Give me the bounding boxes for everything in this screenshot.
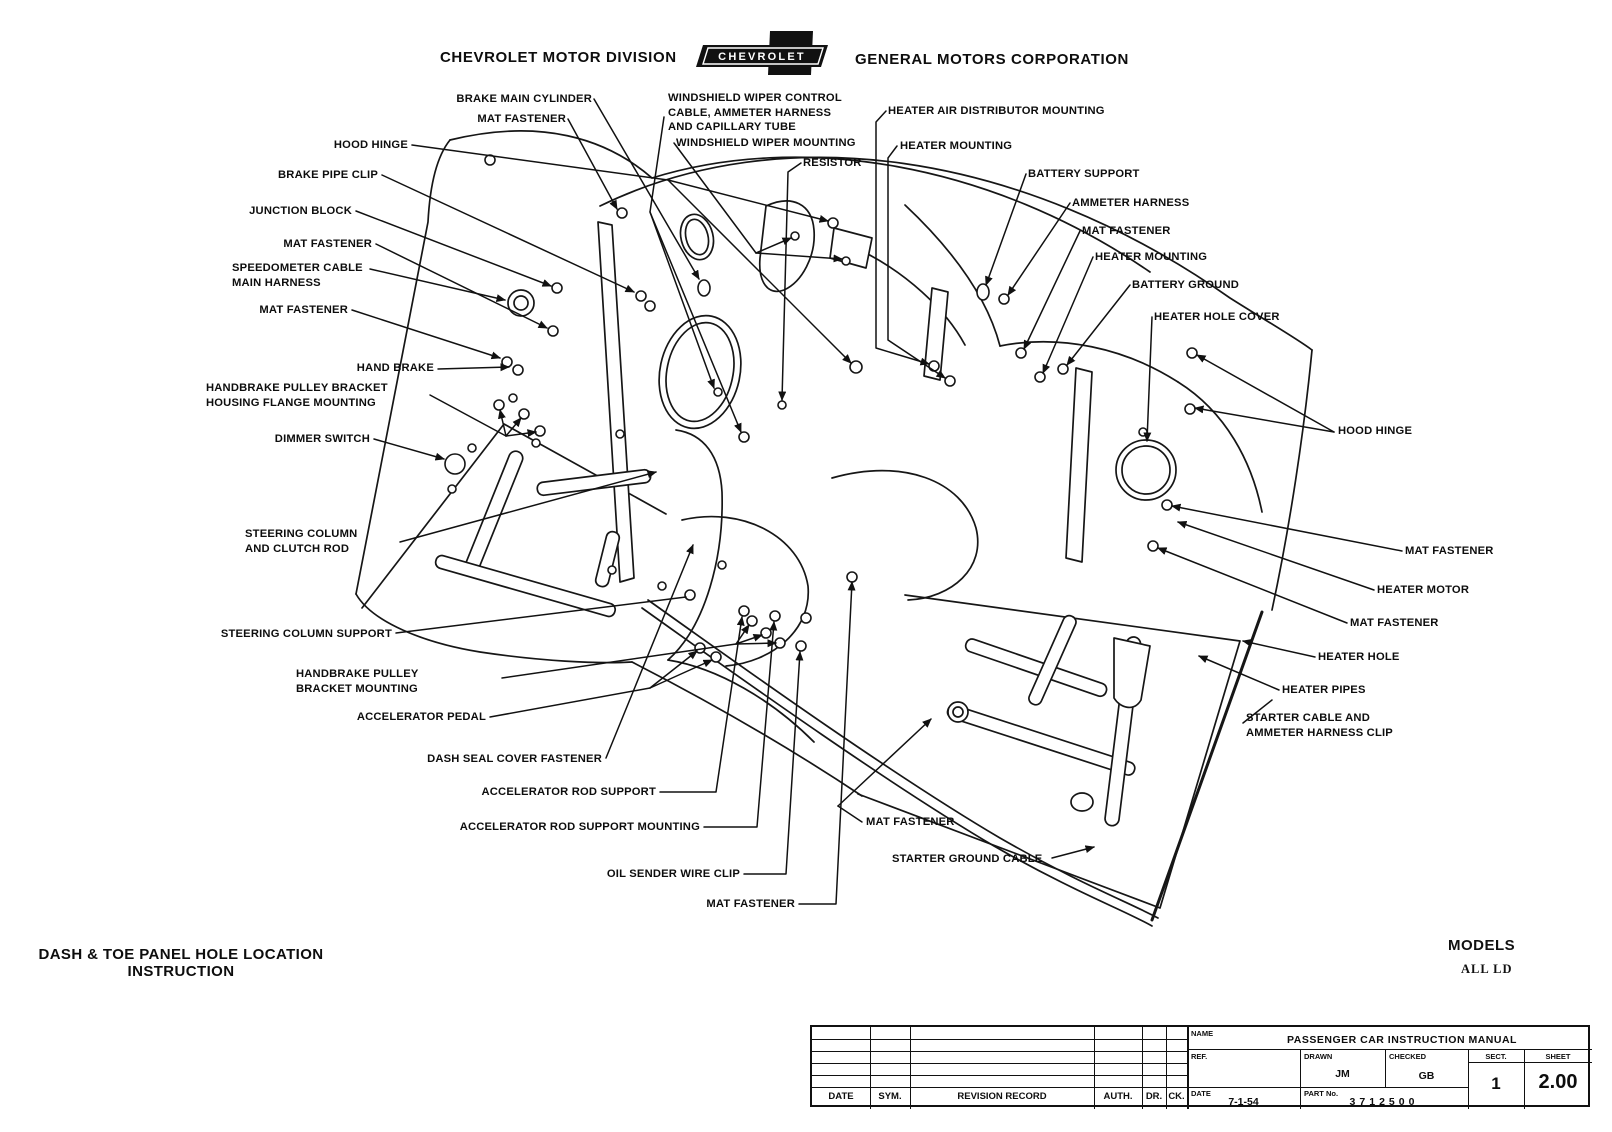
- callout-windshield-wiper-mounting: WINDSHIELD WIPER MOUNTING: [676, 136, 856, 151]
- part-value: 3712500: [1300, 1097, 1468, 1108]
- drawing-title: DASH & TOE PANEL HOLE LOCATION INSTRUCTI…: [38, 946, 323, 980]
- callout-handbrake-pulley-bracket-housing: HANDBRAKE PULLEY BRACKET HOUSING FLANGE …: [206, 381, 388, 410]
- callout-junction-block: JUNCTION BLOCK: [249, 204, 352, 219]
- blueprint-page: CHEVROLET: [0, 0, 1612, 1132]
- callout-battery-ground: BATTERY GROUND: [1132, 278, 1239, 293]
- checked-value: GB: [1385, 1071, 1468, 1082]
- sect-value: 1: [1468, 1075, 1524, 1093]
- callout-heater-mounting-1: HEATER MOUNTING: [900, 139, 1012, 154]
- svg-text:CHEVROLET: CHEVROLET: [718, 51, 806, 63]
- callout-battery-support: BATTERY SUPPORT: [1028, 167, 1140, 182]
- callout-mat-fastener-2: MAT FASTENER: [283, 237, 372, 252]
- header-division: CHEVROLET MOTOR DIVISION: [440, 49, 677, 67]
- callout-mat-fastener-3: MAT FASTENER: [259, 303, 348, 318]
- callout-accelerator-pedal: ACCELERATOR PEDAL: [357, 710, 486, 725]
- callout-heater-air-distributor-mounting: HEATER AIR DISTRIBUTOR MOUNTING: [888, 104, 1105, 119]
- callout-heater-mounting-2: HEATER MOUNTING: [1095, 250, 1207, 265]
- callout-heater-hole: HEATER HOLE: [1318, 650, 1400, 665]
- callout-mat-fastener-4: MAT FASTENER: [706, 897, 795, 912]
- callout-heater-hole-cover: HEATER HOLE COVER: [1154, 310, 1280, 325]
- chevrolet-logo: CHEVROLET: [696, 31, 828, 75]
- callout-oil-sender-wire-clip: OIL SENDER WIRE CLIP: [607, 867, 740, 882]
- sheet-value: 2.00: [1524, 1072, 1592, 1093]
- callout-starter-ground-cable: STARTER GROUND CABLE: [892, 852, 1042, 867]
- callout-resistor: RESISTOR: [803, 156, 862, 171]
- name-label: NAME: [1191, 1030, 1213, 1038]
- rev-col-date: DATE: [812, 1092, 870, 1102]
- rev-col-ck: CK.: [1166, 1092, 1187, 1102]
- callout-windshield-wiper-control-cable: WINDSHIELD WIPER CONTROL CABLE, AMMETER …: [668, 91, 842, 135]
- title-block: DATE SYM. REVISION RECORD AUTH. DR. CK. …: [810, 1025, 1590, 1107]
- date-value: 7-1-54: [1187, 1097, 1300, 1108]
- callout-mat-fastener-5: MAT FASTENER: [1082, 224, 1171, 239]
- callout-mat-fastener-1: MAT FASTENER: [477, 112, 566, 127]
- callout-accelerator-rod-support: ACCELERATOR ROD SUPPORT: [482, 785, 657, 800]
- callout-brake-main-cylinder: BRAKE MAIN CYLINDER: [456, 92, 592, 107]
- callout-hood-hinge-left: HOOD HINGE: [334, 138, 408, 153]
- callout-steering-column-support: STEERING COLUMN SUPPORT: [221, 627, 392, 642]
- rev-col-dr: DR.: [1142, 1092, 1166, 1102]
- callout-speedometer-cable: SPEEDOMETER CABLE MAIN HARNESS: [232, 261, 363, 290]
- callout-hand-brake: HAND BRAKE: [357, 361, 434, 376]
- header-corporation: GENERAL MOTORS CORPORATION: [855, 51, 1129, 69]
- sheet-label: SHEET: [1524, 1053, 1592, 1061]
- callout-handbrake-pulley-bracket-mounting: HANDBRAKE PULLEY BRACKET MOUNTING: [296, 667, 419, 696]
- callout-steering-column-clutch-rod: STEERING COLUMN AND CLUTCH ROD: [245, 527, 357, 556]
- rev-col-auth: AUTH.: [1094, 1092, 1142, 1102]
- manual-name: PASSENGER CAR INSTRUCTION MANUAL: [1212, 1035, 1592, 1046]
- callout-ammeter-harness: AMMETER HARNESS: [1072, 196, 1189, 211]
- callout-mat-fastener-6: MAT FASTENER: [1405, 544, 1494, 559]
- callout-dimmer-switch: DIMMER SWITCH: [275, 432, 370, 447]
- callout-mat-fastener-7: MAT FASTENER: [1350, 616, 1439, 631]
- drawn-value: JM: [1300, 1069, 1385, 1080]
- callout-accelerator-rod-support-mounting: ACCELERATOR ROD SUPPORT MOUNTING: [460, 820, 700, 835]
- sect-label: SECT.: [1468, 1053, 1524, 1061]
- callout-starter-cable-ammeter-clip: STARTER CABLE AND AMMETER HARNESS CLIP: [1246, 711, 1393, 740]
- callout-dash-seal-cover-fastener: DASH SEAL COVER FASTENER: [427, 752, 602, 767]
- callout-hood-hinge-right: HOOD HINGE: [1338, 424, 1412, 439]
- callout-brake-pipe-clip: BRAKE PIPE CLIP: [278, 168, 378, 183]
- callout-heater-motor: HEATER MOTOR: [1377, 583, 1469, 598]
- rev-col-sym: SYM.: [870, 1092, 910, 1102]
- ref-label: REF.: [1191, 1053, 1207, 1061]
- callout-heater-pipes: HEATER PIPES: [1282, 683, 1366, 698]
- leader-lines: [352, 99, 1402, 904]
- models-label: MODELS: [1448, 938, 1515, 954]
- models-value: ALL LD: [1461, 962, 1513, 976]
- callout-mat-fastener-8: MAT FASTENER: [866, 815, 955, 830]
- checked-label: CHECKED: [1389, 1053, 1426, 1061]
- rev-col-record: REVISION RECORD: [910, 1092, 1094, 1102]
- drawn-label: DRAWN: [1304, 1053, 1332, 1061]
